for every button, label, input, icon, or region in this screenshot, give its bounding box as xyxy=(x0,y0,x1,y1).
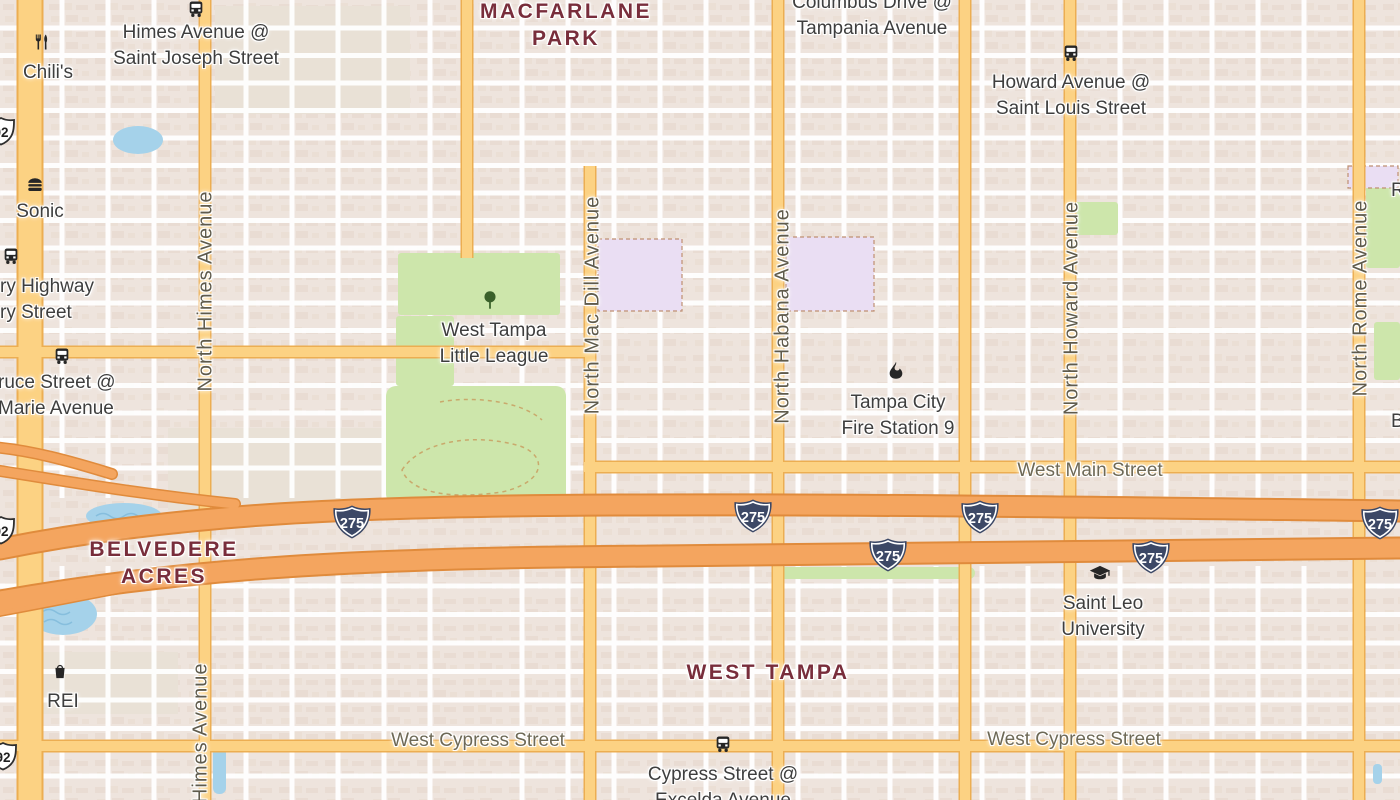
street-label: North Habana Avenue xyxy=(772,208,795,423)
neighborhood-label-macfarlane-park: MACFARLANEPARK xyxy=(480,0,652,52)
bus-stop-label-line: ry Street xyxy=(0,300,94,326)
street-label: North Rome Avenue xyxy=(1350,200,1373,397)
bus-stop-label-spruce-marie: ruce Street @Marie Avenue xyxy=(0,370,116,422)
shield-number: 275 xyxy=(340,516,364,532)
neighborhood-label-line: BELVEDERE xyxy=(89,536,238,563)
poi-label-sonic: Sonic xyxy=(16,199,64,225)
us-route-shield: 92 xyxy=(0,515,17,545)
neighborhood-label-belvedere-acres: BELVEDEREACRES xyxy=(89,536,238,590)
bus-stop-label-highway-street-partial: ry Highwayry Street xyxy=(0,274,94,326)
interstate-shield: 275 xyxy=(331,504,373,540)
neighborhood-label-line: WEST TAMPA xyxy=(686,659,849,686)
bus-stop-label-line: ruce Street @ xyxy=(0,370,116,396)
poi-label-line: Little League xyxy=(440,344,549,370)
bus-icon xyxy=(53,345,72,367)
tree-icon xyxy=(481,290,500,311)
poi-label-line: Fire Station 9 xyxy=(842,416,955,442)
us-route-shield: 92 xyxy=(0,116,17,146)
bus-stop-label-line: Saint Joseph Street xyxy=(113,46,279,72)
bus-stop-label-line: Cypress Street @ xyxy=(648,762,798,788)
interstate-shield: 275 xyxy=(867,537,909,573)
street-label: West Main Street xyxy=(1017,460,1162,482)
map-labels-layer: MACFARLANEPARKBELVEDEREACRESWEST TAMPAHi… xyxy=(0,0,1400,800)
restaurant-icon xyxy=(34,33,52,51)
map-canvas[interactable]: MACFARLANEPARKBELVEDEREACRESWEST TAMPAHi… xyxy=(0,0,1400,800)
bus-icon xyxy=(714,733,733,755)
interstate-shield: 275 xyxy=(959,499,1001,535)
bus-stop-label-line: Excelda Avenue xyxy=(648,788,798,800)
bus-stop-label-line: Howard Avenue @ xyxy=(992,70,1150,96)
us-route-shield: 92 xyxy=(0,741,19,771)
poi-label-chilis: Chili's xyxy=(23,60,73,86)
bus-stop-label-columbus-tampania: Columbus Drive @Tampania Avenue xyxy=(792,0,952,42)
shield-number: 275 xyxy=(1368,517,1392,533)
shield-number: 275 xyxy=(876,549,900,565)
street-label: North Himes Avenue xyxy=(195,190,218,391)
bus-stop-label-himes-saint-joseph: Himes Avenue @Saint Joseph Street xyxy=(113,20,279,72)
bus-icon xyxy=(2,245,21,267)
poi-label-saint-leo-university: Saint LeoUniversity xyxy=(1061,591,1144,643)
street-label: North Himes Avenue xyxy=(190,662,213,800)
poi-label-line: Tampa City xyxy=(842,390,955,416)
neighborhood-label-line: MACFARLANE xyxy=(480,0,652,25)
interstate-shield: 275 xyxy=(1359,505,1400,541)
neighborhood-label-line: ACRES xyxy=(89,563,238,590)
shield-number: 92 xyxy=(0,125,9,140)
poi-label-west-tampa-little-league: West TampaLittle League xyxy=(440,318,549,370)
street-label: West Cypress Street xyxy=(987,729,1161,751)
bus-stop-label-line: Himes Avenue @ xyxy=(113,20,279,46)
bus-stop-label-cypress-excelda: Cypress Street @Excelda Avenue xyxy=(648,762,798,800)
shield-number: 92 xyxy=(0,524,9,539)
graduation-cap-icon xyxy=(1089,564,1111,582)
bus-icon xyxy=(1062,42,1081,64)
street-label: West Cypress Street xyxy=(391,730,565,752)
poi-label-line: Saint Leo xyxy=(1061,591,1144,617)
interstate-shield: 275 xyxy=(1130,539,1172,575)
interstate-shield: 275 xyxy=(732,498,774,534)
street-label: North Mac Dill Avenue xyxy=(582,196,605,415)
street-label: North Howard Avenue xyxy=(1061,201,1084,415)
fire-icon xyxy=(887,361,906,380)
shopping-basket-icon xyxy=(51,662,70,681)
shield-number: 275 xyxy=(1139,551,1163,567)
neighborhood-label-line: PARK xyxy=(480,25,652,52)
bus-stop-label-howard-saint-louis: Howard Avenue @Saint Louis Street xyxy=(992,70,1150,122)
poi-label-tampa-city-fire-station-9: Tampa CityFire Station 9 xyxy=(842,390,955,442)
fast-food-icon xyxy=(26,175,45,194)
poi-label-line: West Tampa xyxy=(440,318,549,344)
bus-stop-label-line: ry Highway xyxy=(0,274,94,300)
shield-number: 275 xyxy=(968,511,992,527)
shield-number: 275 xyxy=(741,510,765,526)
bus-stop-label-line: Tampania Avenue xyxy=(792,16,952,42)
bus-stop-label-line: Marie Avenue xyxy=(0,396,116,422)
poi-label-line: Sonic xyxy=(16,199,64,225)
poi-label-line: University xyxy=(1061,617,1144,643)
shield-number: 92 xyxy=(0,750,11,765)
poi-label-line: Chili's xyxy=(23,60,73,86)
edge-cut-label: R xyxy=(1391,178,1400,204)
edge-cut-label: B xyxy=(1391,409,1400,435)
bus-icon xyxy=(187,0,206,20)
bus-stop-label-line: Saint Louis Street xyxy=(992,96,1150,122)
poi-label-rei: REI xyxy=(47,689,79,715)
poi-label-line: REI xyxy=(47,689,79,715)
neighborhood-label-west-tampa: WEST TAMPA xyxy=(686,659,849,686)
bus-stop-label-line: Columbus Drive @ xyxy=(792,0,952,16)
